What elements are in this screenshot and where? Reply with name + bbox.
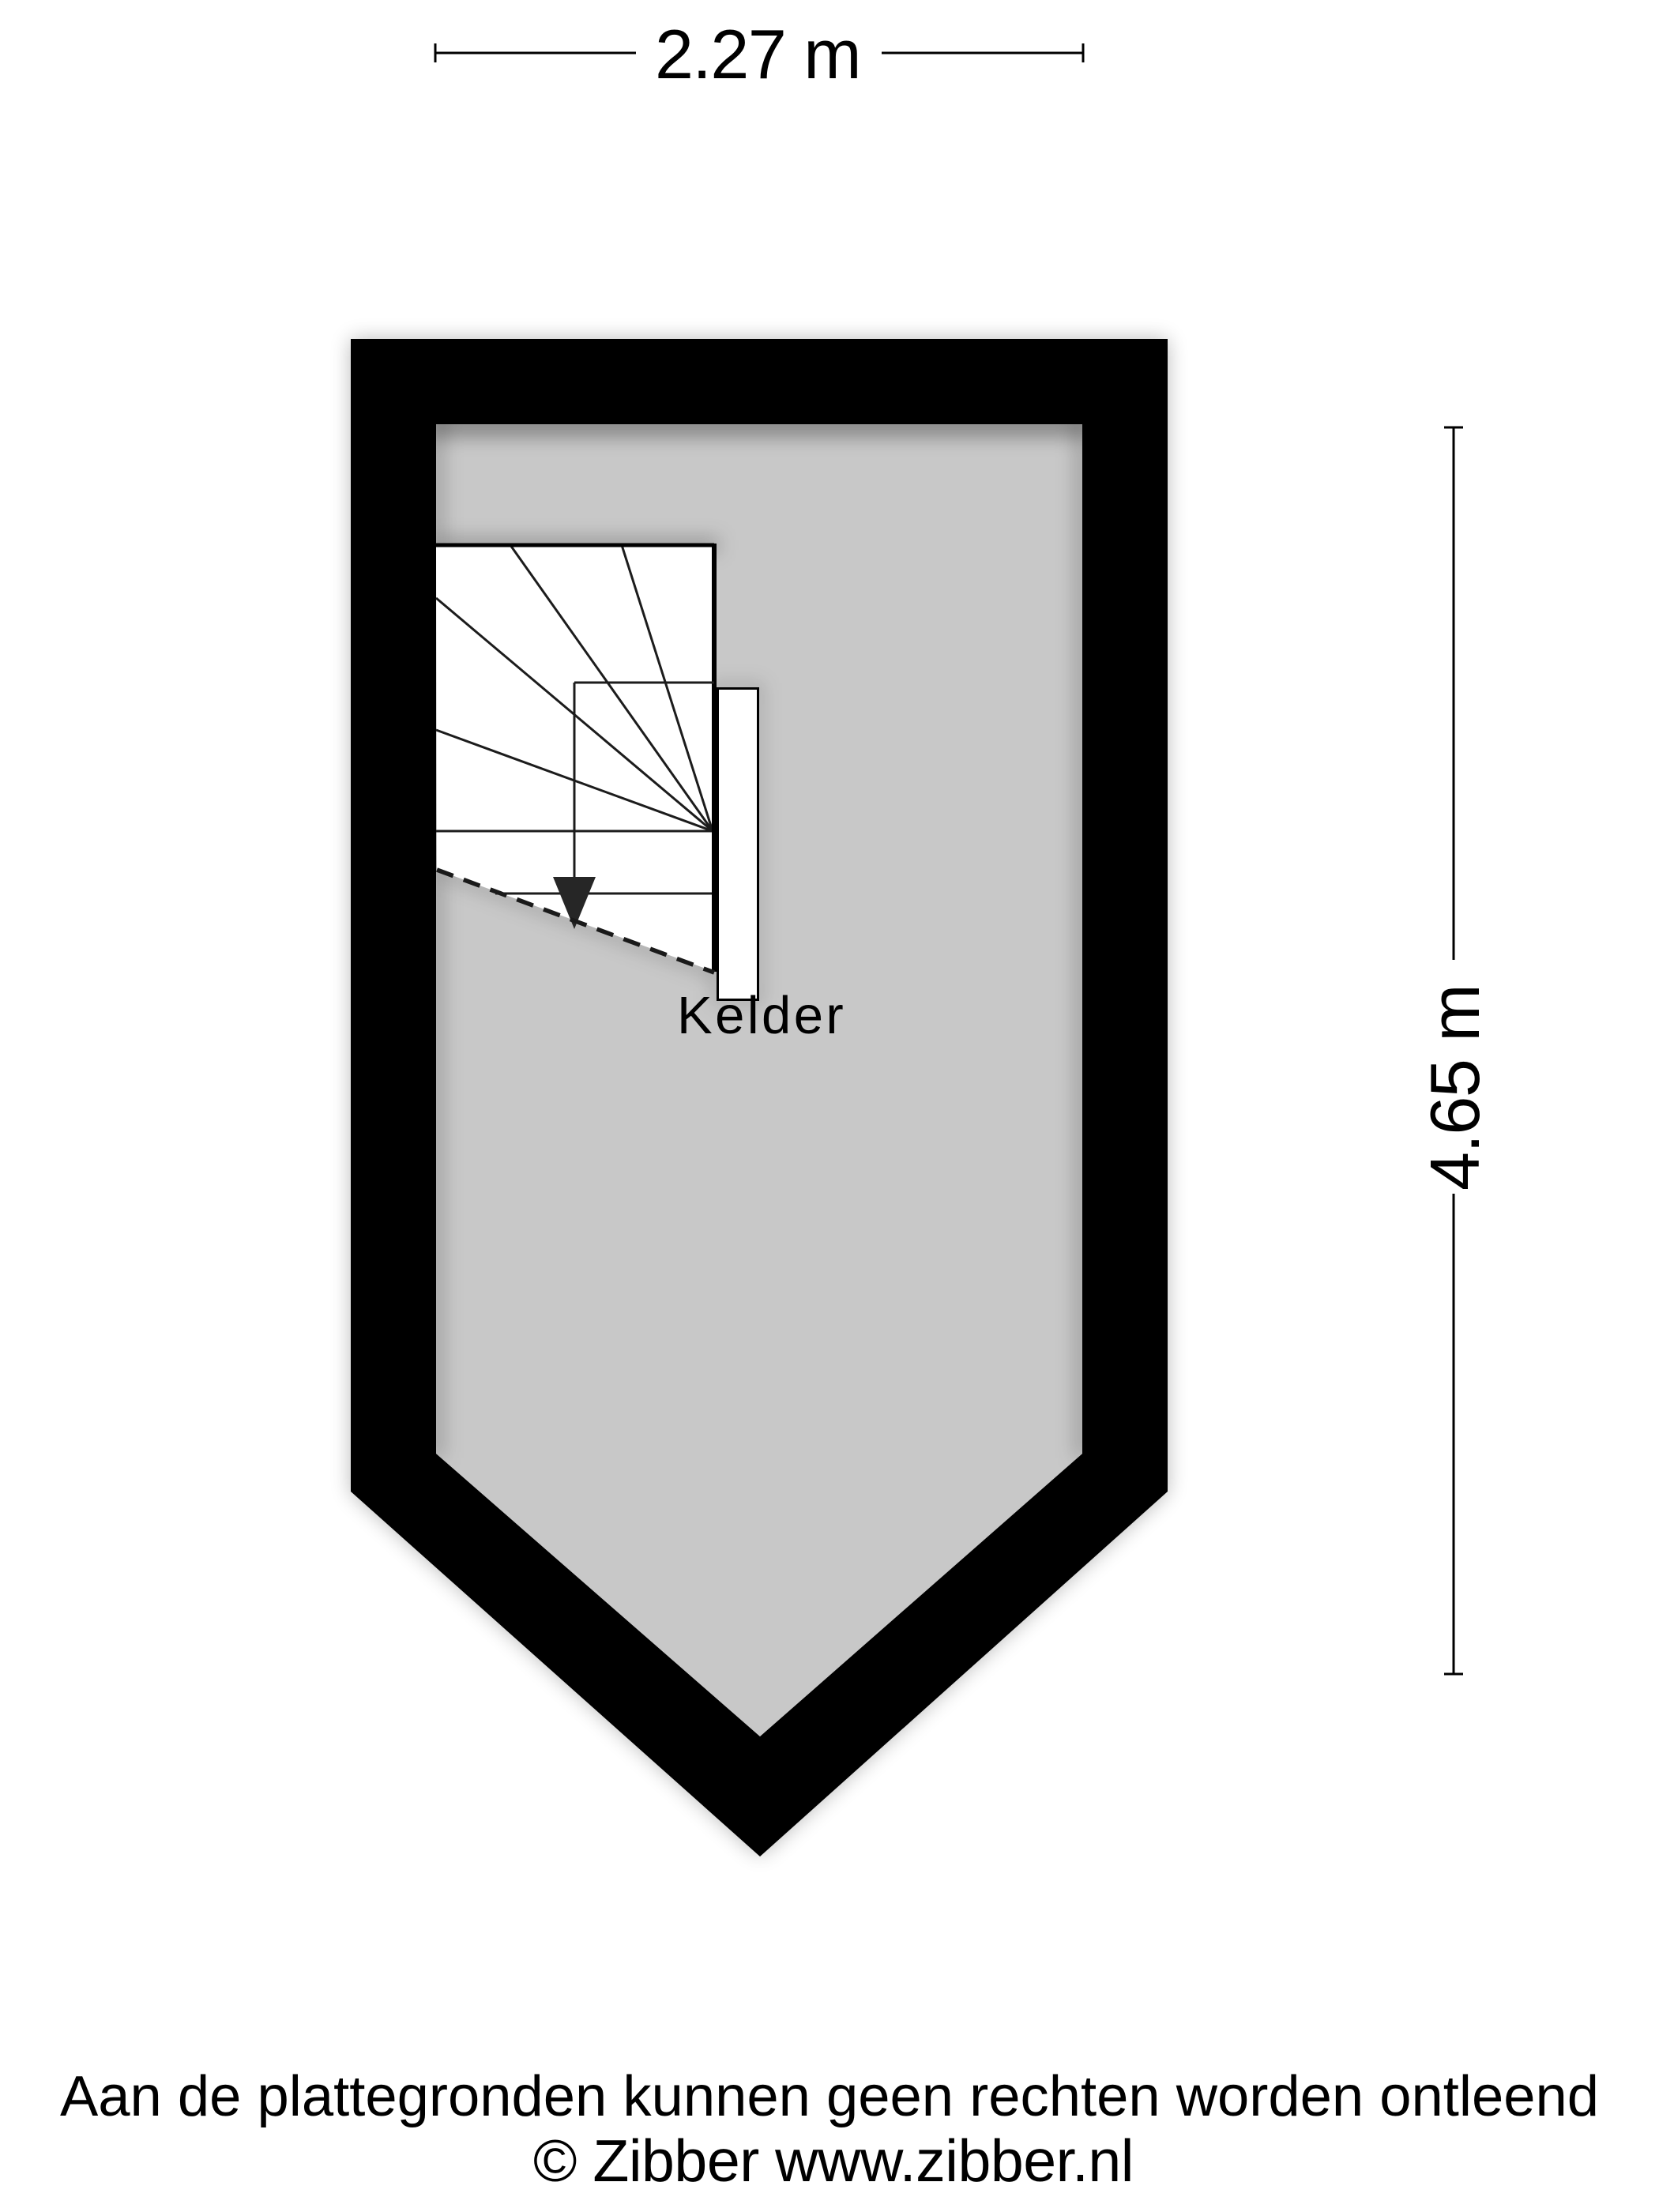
svg-text:Aan de plattegronden kunnen ge: Aan de plattegronden kunnen geen rechten… [60, 2064, 1599, 2128]
svg-text:© Zibber www.zibber.nl: © Zibber www.zibber.nl [533, 2127, 1134, 2194]
svg-text:4.65 m: 4.65 m [1416, 985, 1494, 1191]
svg-text:2.27 m: 2.27 m [655, 15, 860, 93]
svg-text:Kelder: Kelder [677, 986, 846, 1045]
